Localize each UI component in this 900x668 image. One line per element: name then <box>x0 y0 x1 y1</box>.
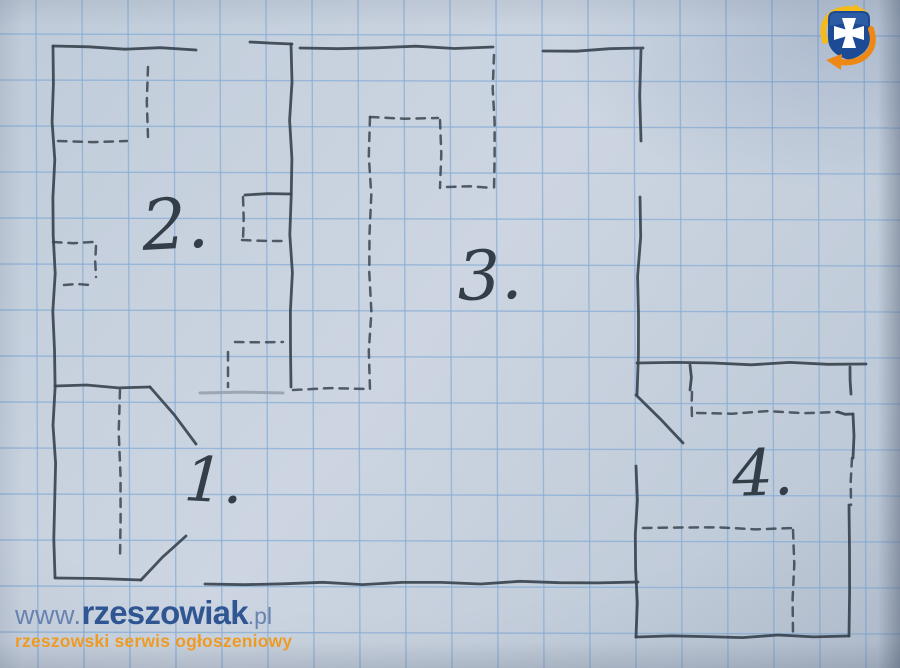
grid-line-v <box>680 0 682 668</box>
dashed-wall-segment <box>643 527 793 529</box>
grid-line-v <box>266 0 268 668</box>
wall-segment <box>849 505 850 636</box>
watermark-tld: .pl <box>248 603 272 629</box>
grid-line-v <box>358 0 360 668</box>
grid-line-h <box>0 402 900 404</box>
watermark-brand: rzeszowiak <box>82 594 248 631</box>
wall-segment <box>850 367 851 394</box>
grid-line-h <box>0 310 900 312</box>
wall-segment <box>150 387 196 444</box>
grid-line-h <box>0 126 900 128</box>
wall-segment <box>141 536 186 580</box>
dashed-wall-segment <box>119 390 121 560</box>
grid-line-v <box>312 0 314 668</box>
graph-paper-grid <box>0 0 900 668</box>
dashed-wall-segment <box>493 55 495 190</box>
dashed-wall-segment <box>95 246 96 277</box>
faint-pencil-line <box>200 392 283 393</box>
wall-segment <box>290 44 293 387</box>
dashed-wall-segment <box>440 120 441 188</box>
grid-line-h <box>0 356 900 358</box>
wall-segment <box>55 578 141 580</box>
watermark-tagline: rzeszowski serwis ogłoszeniowy <box>15 631 292 652</box>
grid-line-v <box>864 0 866 668</box>
grid-line-v <box>818 0 820 668</box>
dashed-wall-segment <box>53 242 93 243</box>
grid-line-v <box>726 0 728 668</box>
dashed-wall-segment <box>242 240 285 241</box>
grid-line-v <box>588 0 590 668</box>
wall-segment <box>250 42 292 44</box>
grid-line-h <box>0 80 900 82</box>
dashed-wall-segment <box>293 388 367 390</box>
watermark-www: www. <box>15 600 82 630</box>
grid-line-v <box>82 0 84 668</box>
wall-segment <box>543 48 643 51</box>
dashed-wall-segment <box>851 458 852 505</box>
dashed-wall-segment <box>697 411 838 414</box>
dashed-wall-segment <box>369 117 372 390</box>
grid-line-v <box>772 0 774 668</box>
grid-line-h <box>0 172 900 174</box>
wall-segment <box>690 365 691 390</box>
wall-segment <box>636 395 683 443</box>
room-label-4: 4. <box>730 436 795 512</box>
floorplan-photo: 1.2.3.4. www.rzeszowiak.pl rzeszowski se… <box>0 0 900 668</box>
wall-segment <box>245 194 291 195</box>
grid-line-v <box>404 0 406 668</box>
wall-segment <box>636 635 849 638</box>
rzeszowiak-logo <box>811 2 885 70</box>
room-labels: 1.2.3.4. <box>139 182 795 518</box>
grid-line-v <box>36 0 38 668</box>
wall-segment <box>637 197 641 395</box>
grid-line-h <box>0 264 900 266</box>
dashed-wall-segment <box>64 284 90 285</box>
wall-segment <box>853 414 854 458</box>
room-label-2: 2. <box>139 182 211 267</box>
wall-segment <box>205 581 638 584</box>
dashed-wall-segment <box>243 197 244 240</box>
wall-segment <box>640 50 641 141</box>
grid-line-h <box>0 586 900 588</box>
room-label-3: 3. <box>456 236 524 317</box>
watermark: www.rzeszowiak.pl rzeszowski serwis ogło… <box>15 596 292 652</box>
grid-line-v <box>450 0 452 668</box>
dashed-wall-segment <box>447 186 492 188</box>
grid-line-v <box>220 0 222 668</box>
grid-line-h <box>0 218 900 220</box>
floorplan-sketch: 1.2.3.4. <box>0 0 900 668</box>
room-label-1: 1. <box>182 442 245 518</box>
grid-line-v <box>128 0 130 668</box>
watermark-url: www.rzeszowiak.pl <box>15 596 292 631</box>
arrow-bottom-head <box>826 54 842 70</box>
grid-line-v <box>542 0 544 668</box>
grid-line-v <box>174 0 176 668</box>
wall-segment <box>55 385 150 388</box>
wall-segment <box>637 362 866 364</box>
grid-line-v <box>496 0 498 668</box>
dashed-wall-segment <box>58 141 127 142</box>
grid-line-h <box>0 540 900 542</box>
wall-segment <box>300 46 493 49</box>
dashed-wall-segment <box>793 530 795 633</box>
faint-pencil-lines <box>200 392 283 393</box>
wall-segment <box>838 412 853 414</box>
